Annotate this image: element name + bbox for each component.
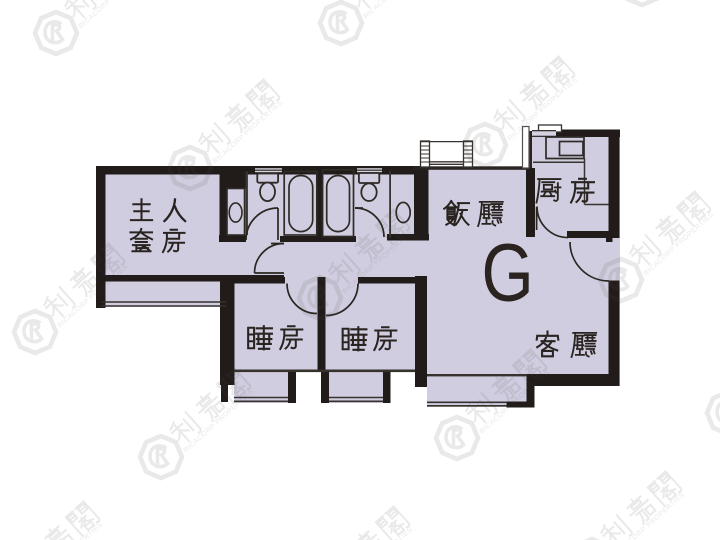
svg-text:G: G: [482, 226, 534, 318]
